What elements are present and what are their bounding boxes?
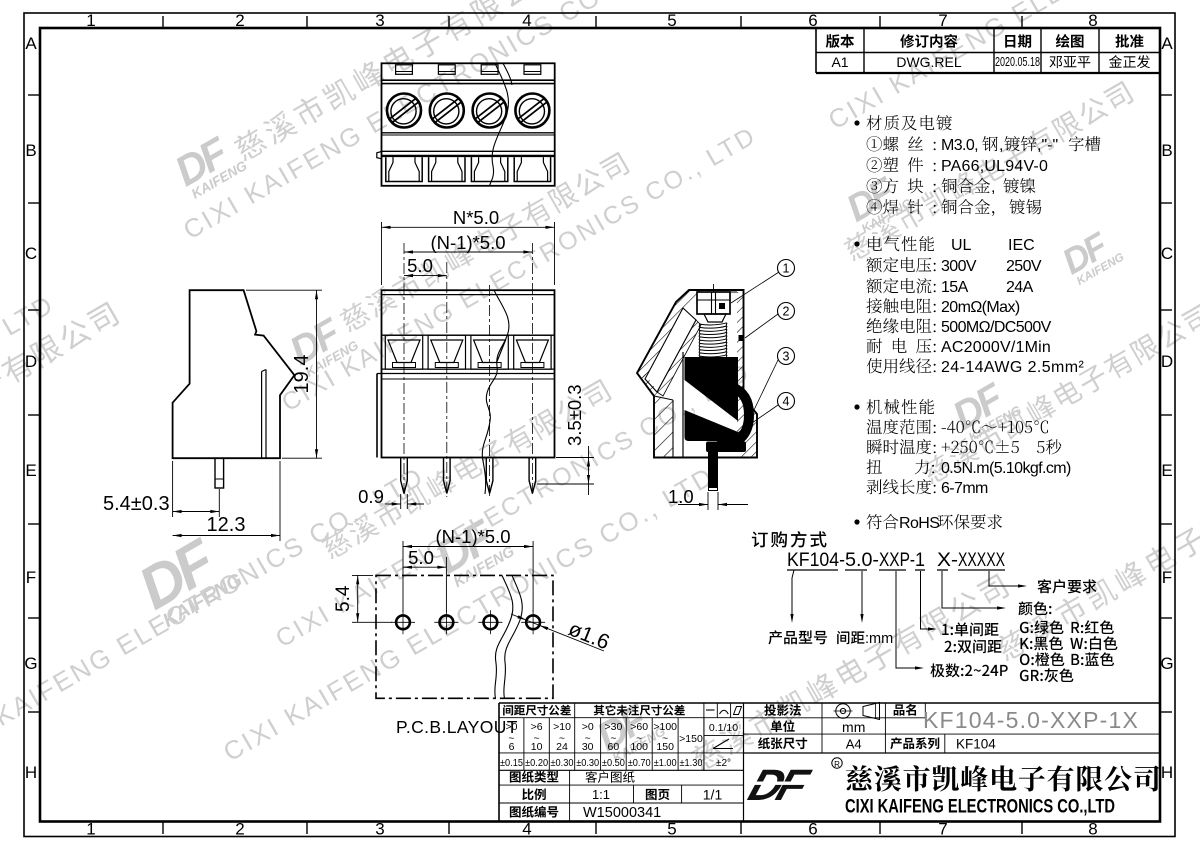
svg-text:2: 2	[235, 820, 244, 839]
svg-text:8: 8	[1088, 11, 1097, 30]
svg-text:100: 100	[630, 741, 648, 753]
svg-text:4: 4	[783, 395, 790, 409]
svg-text:B: B	[1161, 141, 1172, 160]
svg-text:±1.00: ±1.00	[654, 757, 677, 769]
svg-text:20mΩ(Max): 20mΩ(Max)	[941, 299, 1020, 316]
svg-text:6-7mm: 6-7mm	[941, 480, 988, 497]
svg-text:F: F	[1162, 568, 1172, 587]
svg-text:PA66,UL94V-0: PA66,UL94V-0	[941, 158, 1048, 175]
svg-text:6: 6	[808, 11, 817, 30]
svg-text:W15000341: W15000341	[583, 805, 661, 821]
svg-text:>100: >100	[653, 721, 677, 733]
svg-text:RoHS: RoHS	[899, 515, 939, 532]
svg-text:G: G	[1160, 654, 1173, 673]
svg-text:C: C	[1161, 244, 1173, 263]
svg-text:A: A	[1161, 34, 1173, 53]
svg-text:G: G	[24, 654, 37, 673]
svg-text:4: 4	[522, 11, 531, 30]
svg-text:7: 7	[938, 820, 947, 839]
svg-text:1: 1	[915, 549, 925, 571]
svg-text:>10: >10	[553, 721, 571, 733]
svg-text:500MΩ/DC500V: 500MΩ/DC500V	[941, 319, 1052, 336]
svg-text:5.0-: 5.0-	[845, 549, 879, 571]
svg-text:±0.30: ±0.30	[576, 757, 599, 769]
svg-text:7: 7	[938, 11, 947, 30]
svg-text:10: 10	[531, 741, 543, 753]
svg-text:D: D	[25, 352, 37, 371]
svg-text:60: 60	[608, 741, 620, 753]
svg-text:,: ,	[999, 137, 1003, 154]
svg-text:(N-1)*5.0: (N-1)*5.0	[435, 526, 510, 547]
svg-text:M3.0,: M3.0,	[941, 137, 978, 154]
svg-text:H: H	[1161, 763, 1173, 782]
svg-text:CIXI KAIFENG ELECTRONICS CO.,L: CIXI KAIFENG ELECTRONICS CO.,LTD	[845, 796, 1115, 818]
svg-text:24A: 24A	[1006, 279, 1034, 296]
svg-text:0.1/10: 0.1/10	[709, 722, 738, 734]
svg-text:6: 6	[808, 820, 817, 839]
svg-text:XXXXX: XXXXX	[958, 549, 1005, 571]
svg-text:±2°: ±2°	[716, 758, 731, 769]
svg-text:UL: UL	[951, 237, 972, 254]
svg-text:P.C.B.LAYOUT: P.C.B.LAYOUT	[396, 717, 518, 737]
svg-text:1/1: 1/1	[703, 787, 723, 803]
svg-text:>150: >150	[679, 733, 703, 745]
svg-text:>6: >6	[531, 721, 543, 733]
svg-text:KF104-5.0-XXP-1X: KF104-5.0-XXP-1X	[923, 707, 1139, 733]
svg-text:12.3: 12.3	[207, 514, 246, 536]
svg-text:IEC: IEC	[1008, 237, 1035, 254]
svg-text:B: B	[25, 141, 36, 160]
svg-text:1: 1	[86, 11, 95, 30]
svg-text:H: H	[25, 763, 37, 782]
svg-text:±0.30: ±0.30	[551, 757, 574, 769]
svg-text:6: 6	[509, 741, 515, 753]
svg-text:KF104-: KF104-	[787, 549, 845, 571]
svg-text::mm: :mm	[865, 631, 893, 647]
svg-text:15A: 15A	[941, 279, 969, 296]
svg-text:A1: A1	[831, 54, 848, 70]
svg-text:5.0: 5.0	[407, 255, 433, 276]
svg-text:±0.70: ±0.70	[628, 757, 651, 769]
svg-text:E: E	[25, 461, 36, 480]
svg-text:,: ,	[991, 179, 995, 196]
svg-text:150: 150	[656, 741, 674, 753]
svg-text:C: C	[25, 244, 37, 263]
svg-text:F: F	[26, 568, 36, 587]
svg-text:A: A	[25, 34, 37, 53]
svg-text:±0.15: ±0.15	[500, 757, 523, 769]
svg-text:1: 1	[86, 820, 95, 839]
svg-text:5.0: 5.0	[408, 547, 434, 568]
svg-text:30: 30	[582, 741, 594, 753]
svg-text:>30: >30	[604, 721, 622, 733]
svg-text:AC2000V/1Min: AC2000V/1Min	[941, 339, 1051, 356]
svg-text:mm: mm	[842, 719, 865, 735]
svg-text:N*5.0: N*5.0	[453, 207, 499, 228]
svg-text:>0: >0	[582, 721, 594, 733]
svg-text:±0.50: ±0.50	[602, 757, 625, 769]
svg-text:,"-": ,"-"	[1037, 137, 1058, 154]
svg-text:>60: >60	[630, 721, 648, 733]
svg-text:±1.30: ±1.30	[680, 757, 703, 769]
svg-text:D: D	[1161, 352, 1173, 371]
svg-text:5: 5	[667, 11, 676, 30]
svg-text:5.4: 5.4	[333, 585, 354, 612]
svg-text:R: R	[834, 760, 840, 769]
svg-text:A4: A4	[846, 737, 862, 752]
svg-text:DWG.REL: DWG.REL	[896, 54, 962, 70]
svg-text:XXP-: XXP-	[879, 549, 915, 571]
svg-text:2: 2	[783, 305, 790, 319]
svg-text:4: 4	[522, 820, 531, 839]
svg-text:24: 24	[556, 741, 568, 753]
svg-text:8: 8	[1088, 820, 1097, 839]
svg-text:24-14AWG 2.5mm²: 24-14AWG 2.5mm²	[941, 359, 1084, 376]
svg-text:0.9: 0.9	[358, 486, 384, 507]
svg-text:(N-1)*5.0: (N-1)*5.0	[430, 232, 505, 253]
svg-text:1:1: 1:1	[592, 787, 610, 802]
svg-text:3: 3	[375, 11, 384, 30]
svg-text:E: E	[1161, 461, 1172, 480]
svg-text:0.5N.m(5.10kgf.cm): 0.5N.m(5.10kgf.cm)	[941, 460, 1071, 477]
svg-text:KF104: KF104	[956, 737, 996, 752]
svg-text:2: 2	[235, 11, 244, 30]
svg-text:300V: 300V	[941, 258, 977, 275]
svg-text:5.4±0.3: 5.4±0.3	[103, 493, 170, 515]
svg-text:3.5±0.3: 3.5±0.3	[564, 384, 585, 446]
svg-text:X-: X-	[937, 549, 958, 571]
svg-text:3: 3	[375, 820, 384, 839]
svg-text:1.0: 1.0	[668, 486, 694, 507]
svg-text:±0.20: ±0.20	[525, 757, 548, 769]
svg-text:5: 5	[667, 820, 676, 839]
svg-text:2020.05.18: 2020.05.18	[995, 55, 1040, 69]
svg-text:19.4: 19.4	[291, 355, 313, 394]
svg-text:250V: 250V	[1006, 258, 1042, 275]
svg-text:3: 3	[783, 350, 790, 364]
svg-text:1: 1	[783, 262, 790, 276]
